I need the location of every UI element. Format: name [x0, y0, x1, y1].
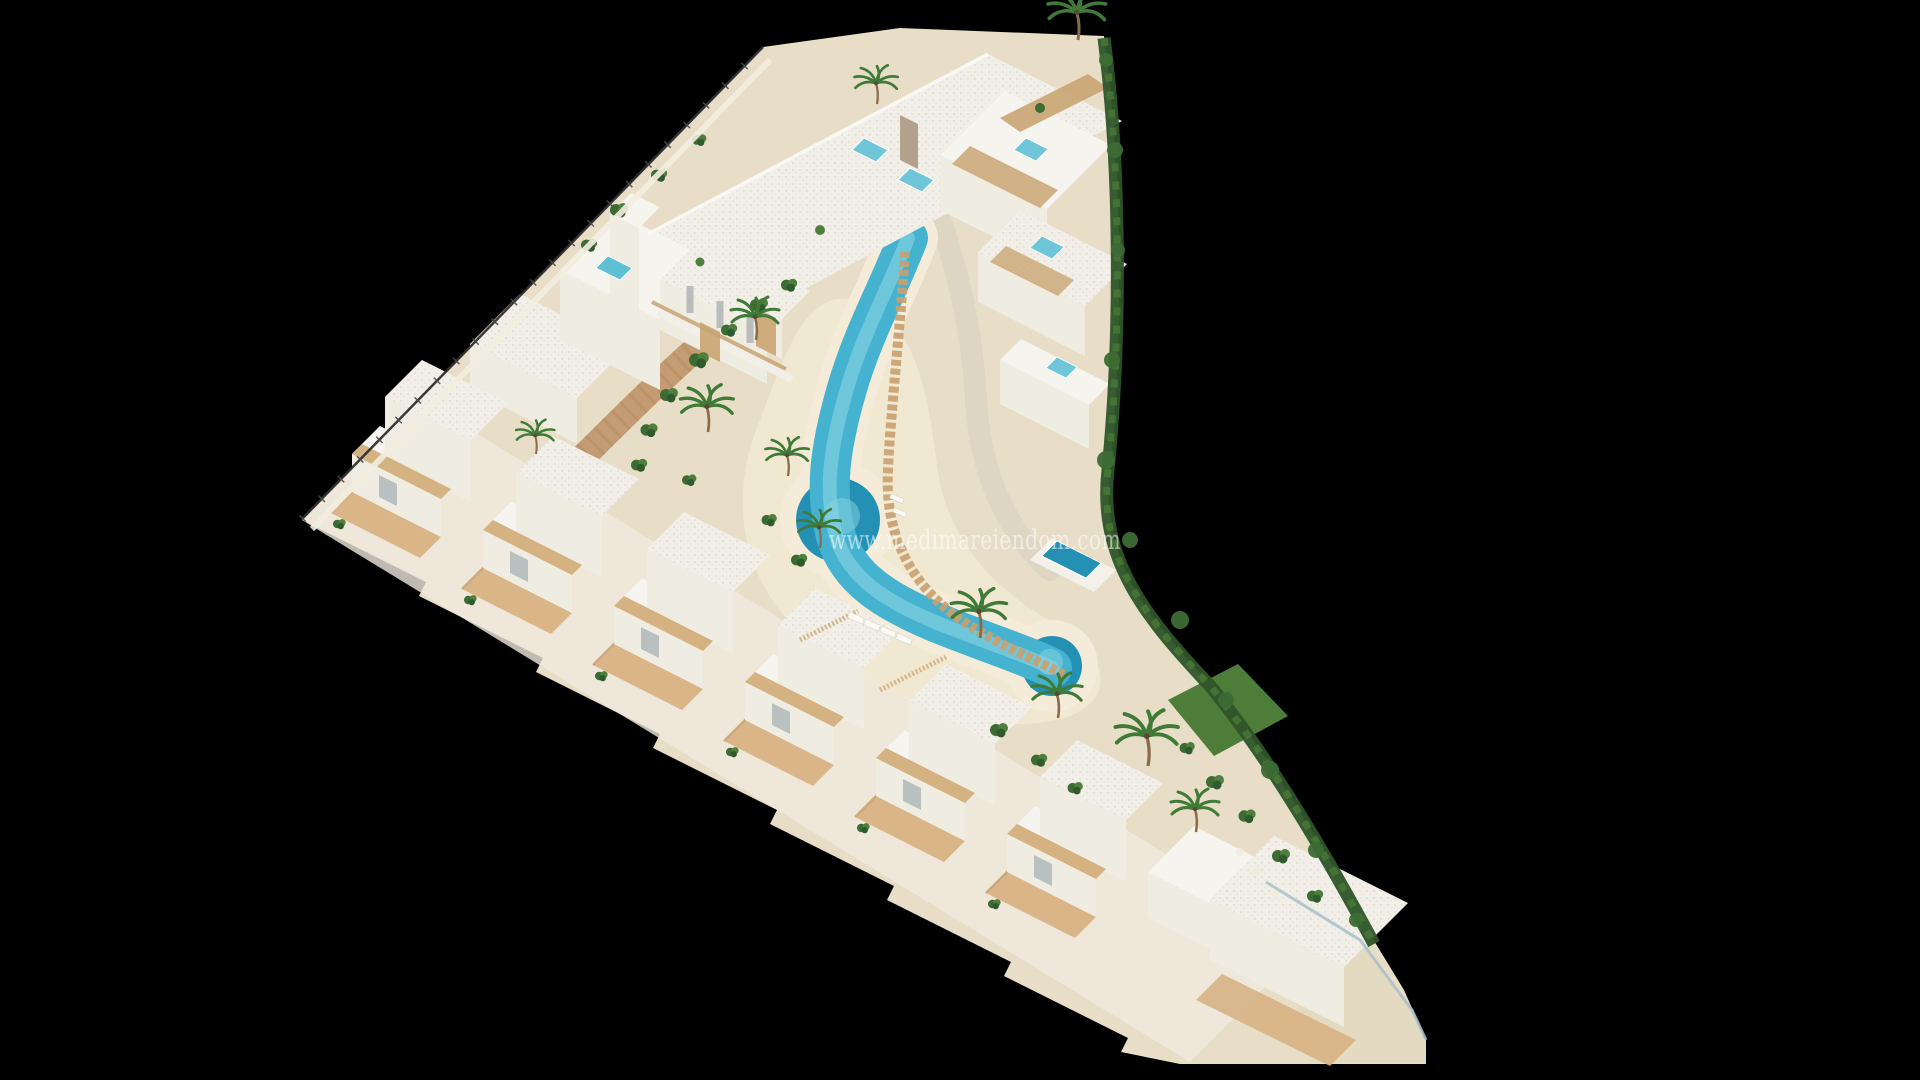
architectural-render: www.medimareiendom.com [0, 0, 1920, 1080]
stone-chimney [900, 115, 918, 169]
render-canvas: www.medimareiendom.com [0, 0, 1920, 1080]
watermark-text: www.medimareiendom.com [829, 525, 1121, 556]
palm-tree-icon [1048, 0, 1106, 40]
